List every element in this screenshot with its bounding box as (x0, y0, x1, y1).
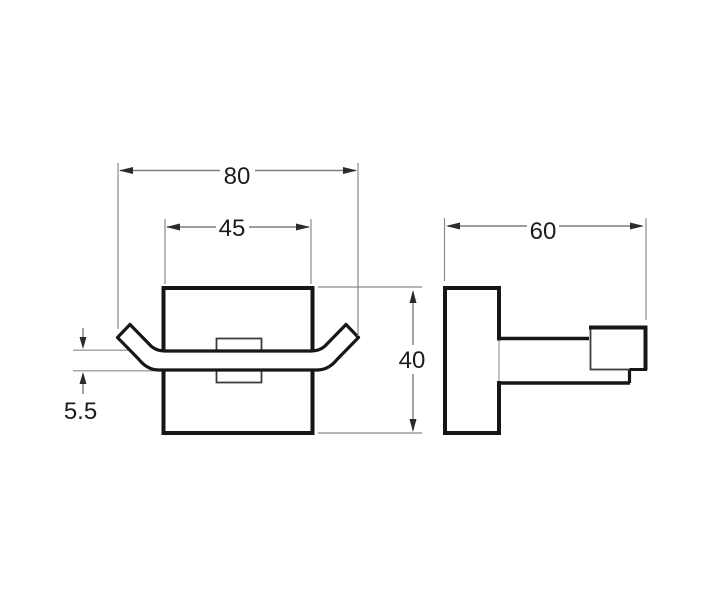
side-plate-outline (445, 288, 499, 433)
side-view: 60 (445, 218, 648, 433)
technical-drawing-canvas: 80 45 40 5.5 (0, 0, 720, 600)
dim-60-arrow-right (630, 223, 644, 230)
dim-40-arrow-bottom (410, 419, 417, 432)
dim-45-label: 45 (219, 215, 246, 242)
dim-60-label: 60 (530, 218, 557, 245)
dim-40-label: 40 (399, 347, 426, 374)
dim-45: 45 (165, 215, 311, 284)
dim-5-5-arrow-top (80, 337, 87, 349)
dim-5-5-arrow-bottom (80, 372, 87, 384)
dim-5-5-label: 5.5 (64, 398, 97, 425)
dim-45-arrow-right (296, 224, 310, 231)
dim-60-arrow-left (446, 223, 460, 230)
dim-45-arrow-left (166, 224, 180, 231)
front-view: 80 45 40 5.5 (64, 163, 426, 433)
dim-40-arrow-top (410, 290, 417, 303)
dim-80-arrow-left (119, 167, 133, 174)
dim-80-label: 80 (224, 163, 251, 190)
dim-80-arrow-right (343, 167, 357, 174)
side-hook-tip-outline (591, 328, 646, 370)
dim-5-5: 5.5 (64, 328, 97, 425)
